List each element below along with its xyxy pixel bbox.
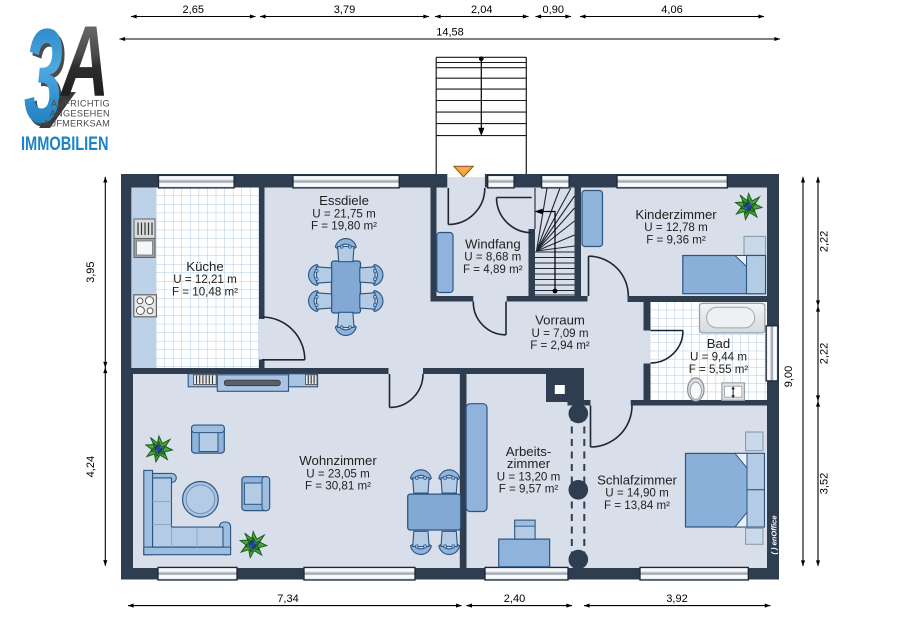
svg-text:Bad: Bad <box>707 336 730 351</box>
svg-text:U = 13,20 m: U = 13,20 m <box>497 470 560 483</box>
svg-text:7,34: 7,34 <box>277 593 298 605</box>
svg-text:U = 7,09 m: U = 7,09 m <box>531 327 588 340</box>
svg-text:F = 10,48 m²: F = 10,48 m² <box>172 285 238 298</box>
svg-text:0,90: 0,90 <box>543 4 564 16</box>
svg-text:2,65: 2,65 <box>183 4 204 16</box>
svg-text:Schlafzimmer: Schlafzimmer <box>597 472 677 487</box>
svg-text:U = 8,68 m: U = 8,68 m <box>464 251 521 264</box>
svg-text:Vorraum: Vorraum <box>535 312 585 327</box>
svg-text:F = 4,89 m²: F = 4,89 m² <box>463 263 523 276</box>
svg-text:4,24: 4,24 <box>85 456 97 477</box>
svg-text:3,95: 3,95 <box>85 261 97 282</box>
svg-text:U = 23,05 m: U = 23,05 m <box>306 467 369 480</box>
svg-text:U = 14,90 m: U = 14,90 m <box>605 487 668 500</box>
svg-text:U = 9,44 m: U = 9,44 m <box>690 351 747 364</box>
svg-text:Windfang: Windfang <box>465 236 521 251</box>
svg-text:3,52: 3,52 <box>819 473 831 494</box>
svg-text:zimmer: zimmer <box>507 456 551 471</box>
svg-text:( ) enOffice: ( ) enOffice <box>769 515 778 554</box>
svg-text:Wohnzimmer: Wohnzimmer <box>299 453 377 468</box>
svg-text:U = 12,21 m: U = 12,21 m <box>173 273 236 286</box>
svg-text:F = 30,81 m²: F = 30,81 m² <box>305 480 371 493</box>
svg-text:Küche: Küche <box>186 259 223 274</box>
svg-text:IMMOBILIEN: IMMOBILIEN <box>21 133 109 155</box>
svg-text:4,06: 4,06 <box>661 4 682 16</box>
svg-text:F = 13,84 m²: F = 13,84 m² <box>604 499 670 512</box>
svg-text:2,22: 2,22 <box>819 231 831 252</box>
svg-text:2,04: 2,04 <box>471 4 492 16</box>
svg-text:3,79: 3,79 <box>334 4 355 16</box>
svg-text:U = 12,78 m: U = 12,78 m <box>644 221 707 234</box>
svg-text:F = 2,94 m²: F = 2,94 m² <box>530 339 590 352</box>
svg-text:F = 9,57 m²: F = 9,57 m² <box>499 483 559 496</box>
svg-text:3,92: 3,92 <box>666 593 687 605</box>
svg-text:9,00: 9,00 <box>783 366 795 387</box>
svg-text:AUFMERKSAM: AUFMERKSAM <box>43 118 110 128</box>
svg-text:2,22: 2,22 <box>819 343 831 364</box>
svg-text:14,58: 14,58 <box>436 27 464 39</box>
svg-text:Essdiele: Essdiele <box>319 193 369 208</box>
svg-text:U = 21,75 m: U = 21,75 m <box>312 207 375 220</box>
svg-text:Kinderzimmer: Kinderzimmer <box>635 207 717 222</box>
svg-text:F = 19,80 m²: F = 19,80 m² <box>311 220 377 233</box>
svg-text:ANGESEHEN: ANGESEHEN <box>50 108 110 118</box>
svg-text:AUFRICHTIG: AUFRICHTIG <box>51 99 110 109</box>
svg-text:F = 9,36 m²: F = 9,36 m² <box>646 233 706 246</box>
svg-text:F = 5,55 m²: F = 5,55 m² <box>689 363 749 376</box>
svg-text:2,40: 2,40 <box>504 593 525 605</box>
